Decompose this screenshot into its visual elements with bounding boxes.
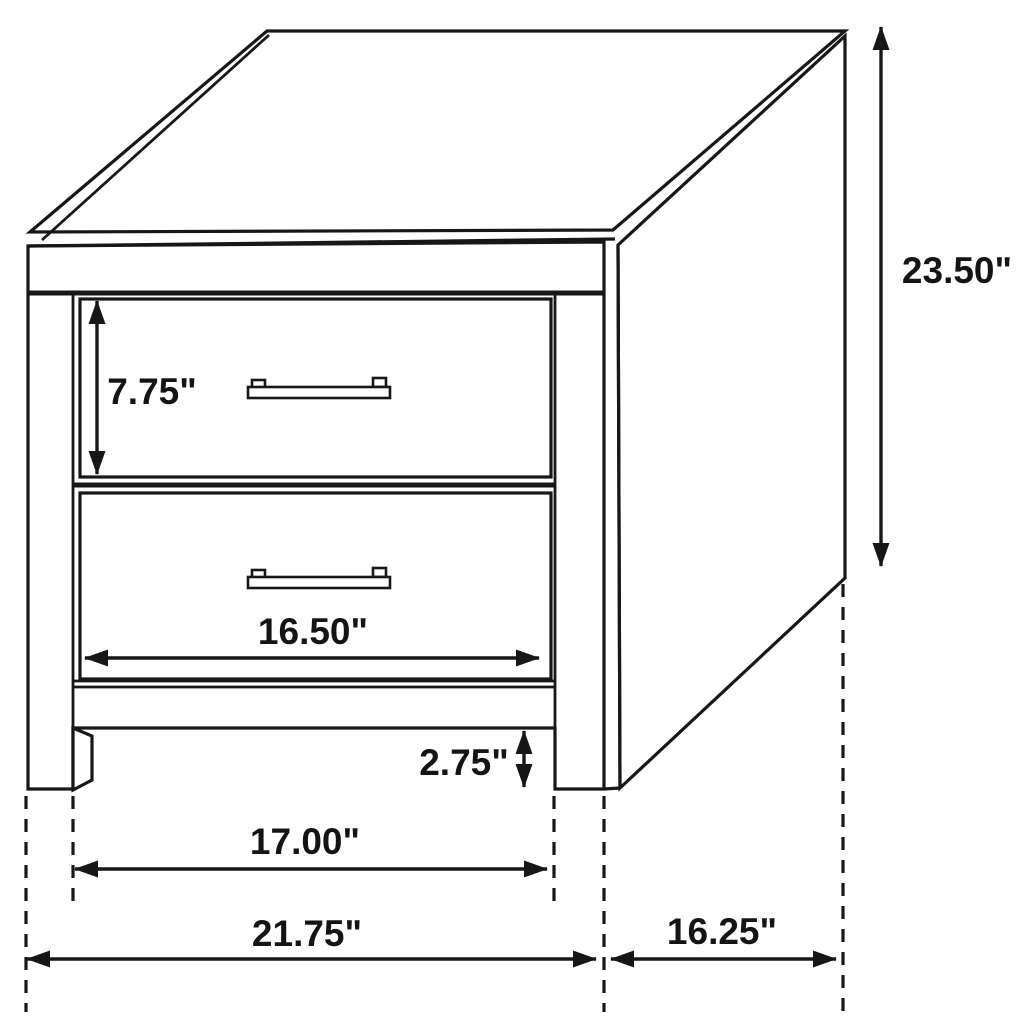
handle-right-tab	[373, 568, 386, 577]
front-right-corner-bottom	[604, 788, 620, 789]
overall-width-label: 21.75"	[252, 913, 362, 954]
front-right-corner-edge	[618, 245, 620, 788]
handle-bar	[248, 577, 390, 588]
left-leg-inner-face	[73, 728, 92, 790]
handle-right-tab	[373, 378, 386, 387]
nightstand-dimension-diagram: 23.50" 7.75" 16.50" 2.75" 17.00" 21.75"	[0, 0, 1024, 1024]
leg-height-label: 2.75"	[419, 742, 509, 783]
height-label: 23.50"	[902, 250, 1012, 291]
handle-bar	[248, 387, 390, 398]
drawer-height-label: 7.75"	[107, 371, 197, 412]
overall-depth-label: 16.25"	[667, 911, 777, 952]
drawer-width-label: 16.50"	[258, 611, 368, 652]
between-legs-label: 17.00"	[250, 821, 360, 862]
